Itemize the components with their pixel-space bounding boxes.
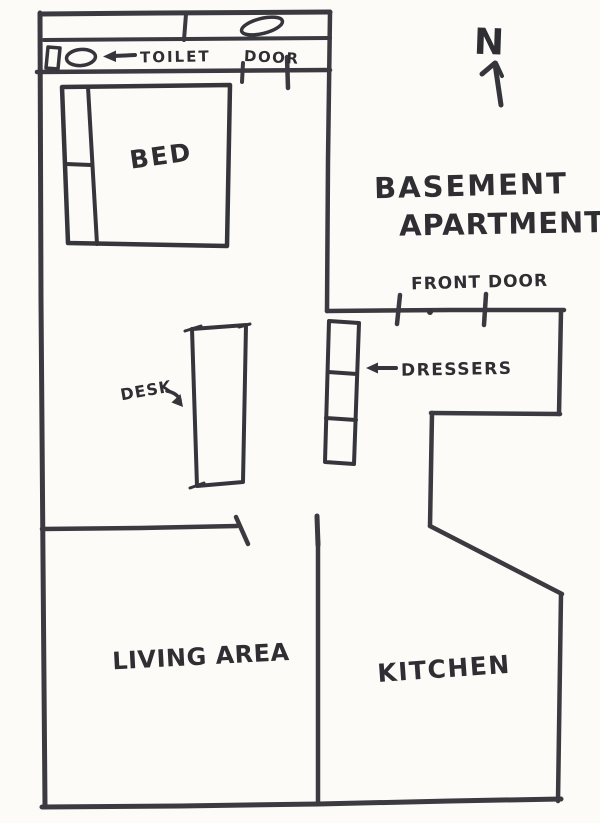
bathroom-door-tick-left — [242, 63, 243, 82]
outer-wall-bottom — [42, 799, 561, 807]
toilet-arrowhead-icon — [103, 51, 116, 63]
dressers-label: DRESSERS — [401, 359, 513, 381]
front-door-tick-right — [484, 294, 486, 325]
desk-outline — [192, 325, 246, 486]
bed-pillow-split — [66, 164, 91, 165]
title-line-2: APARTMENT — [399, 205, 600, 243]
bathroom-counter-line — [44, 38, 330, 40]
living-area-label: LIVING AREA — [112, 638, 291, 675]
right-wall-upper — [559, 311, 561, 414]
north-label: N — [473, 22, 505, 64]
outer-wall-left — [40, 13, 45, 806]
bathroom-counter-divider — [184, 14, 186, 40]
title-line-1: BASEMENT — [374, 166, 569, 205]
kitchen-diagonal-wall — [430, 526, 562, 594]
front-door-tick-left — [397, 295, 400, 324]
living-area-door-tick — [236, 517, 248, 544]
right-wall-lower — [558, 594, 561, 801]
door-label: DOOR — [244, 47, 300, 68]
toilet-arrow-icon — [113, 55, 135, 56]
front-door-wall — [327, 310, 564, 311]
dressers-arrowhead-icon — [366, 363, 378, 374]
kitchen-label: KITCHEN — [376, 650, 511, 688]
bed-label: BED — [128, 137, 194, 174]
living-area-wall — [42, 526, 237, 529]
floorplan-page: N BASEMENT APARTMENT FRONT DOOR DRESSERS… — [0, 0, 600, 823]
toilet-tank-icon — [46, 47, 60, 69]
notch-left-wall — [430, 413, 432, 526]
dressers-outline — [325, 321, 359, 464]
north-arrow-barb-left — [482, 63, 495, 74]
dresser-divider-2 — [326, 418, 356, 420]
floorplan-canvas: N BASEMENT APARTMENT FRONT DOOR DRESSERS… — [0, 0, 600, 823]
dresser-divider-1 — [328, 372, 357, 374]
toilet-label: TOILET — [140, 47, 211, 66]
front-door-label: FRONT DOOR — [411, 271, 548, 295]
bedroom-right-wall — [327, 13, 330, 311]
front-door-hinge-dot — [427, 309, 433, 315]
notch-top-wall — [431, 413, 560, 414]
toilet-bowl-icon — [66, 48, 96, 66]
desk-label: DESK — [119, 377, 174, 405]
sink-icon — [240, 14, 284, 39]
